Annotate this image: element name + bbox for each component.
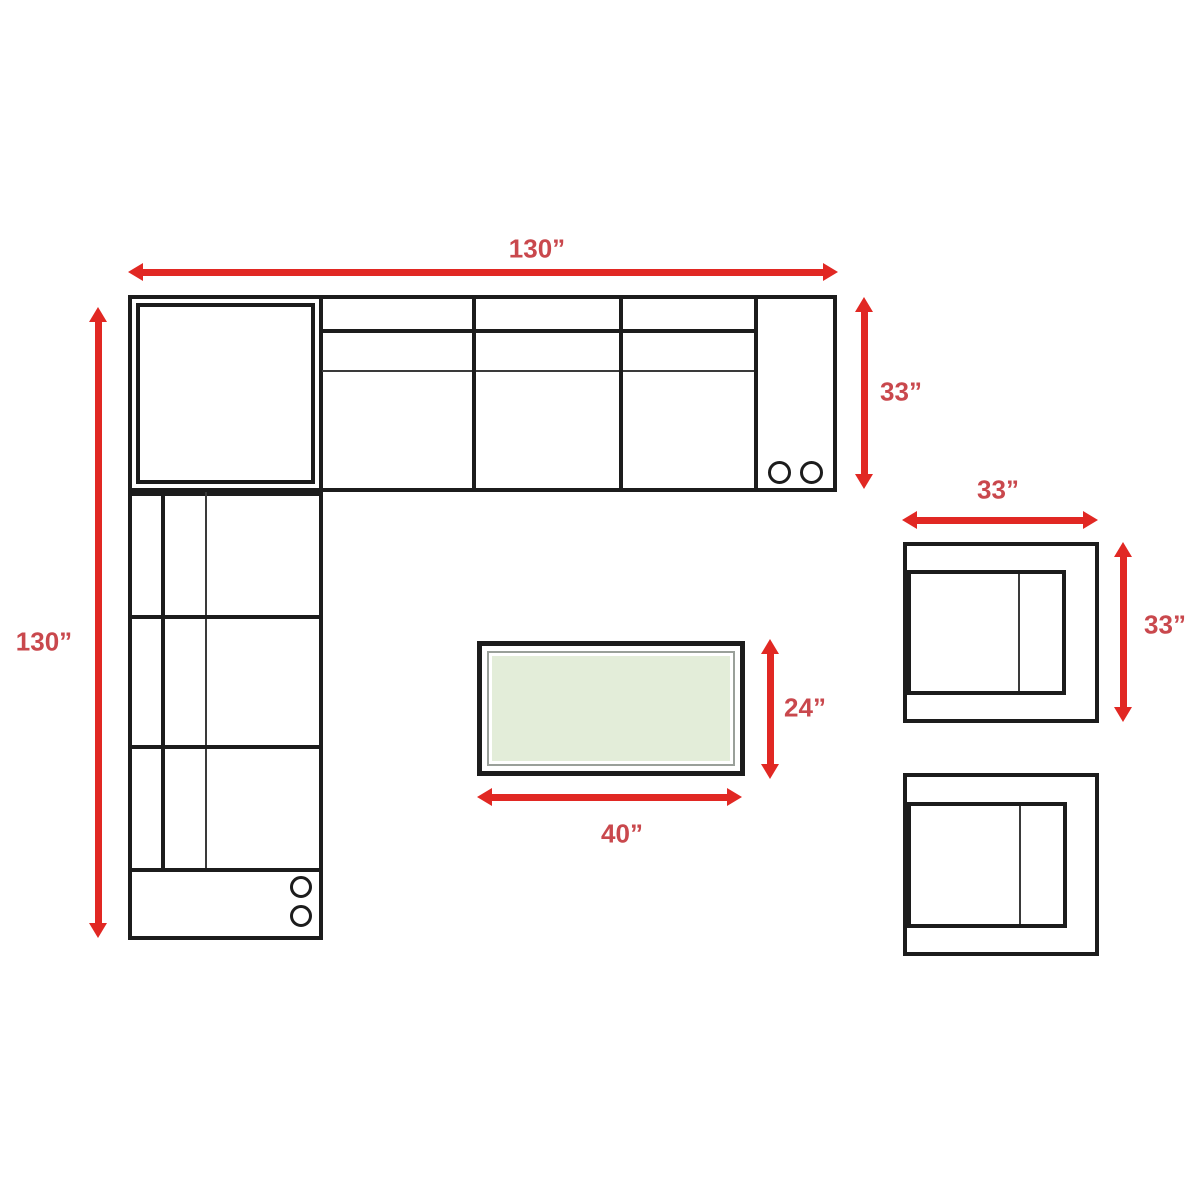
- dim-label-armchair-width: 33”: [977, 475, 1019, 506]
- armchair-1-cushion-line: [1018, 574, 1020, 691]
- arrowhead-down-icon: [761, 764, 779, 779]
- dim-arrow-table-depth: [761, 639, 779, 779]
- sectional-left-seat-divider-1: [128, 615, 323, 619]
- arrowhead-right-icon: [1083, 511, 1098, 529]
- dim-label-sectional-width: 130”: [509, 234, 565, 265]
- sectional-left-armrest-divider: [128, 868, 323, 872]
- sectional-left-outline: [128, 492, 323, 940]
- cupholder-icon: [768, 461, 791, 484]
- arrowhead-right-icon: [727, 788, 742, 806]
- arrow-shaft: [767, 651, 774, 767]
- dim-arrow-sectional-width: [128, 263, 838, 281]
- dim-arrow-armchair-depth: [1114, 542, 1132, 722]
- armchair-2-cushion-line: [1019, 806, 1021, 924]
- sectional-top-armrest-divider: [754, 295, 758, 492]
- cupholder-icon: [290, 905, 312, 927]
- arrow-shaft: [1120, 554, 1127, 710]
- sectional-top-seat-divider-1: [472, 295, 476, 492]
- dim-arrow-sectional-depth: [855, 297, 873, 489]
- arrow-shaft: [140, 269, 826, 276]
- armchair-1-seat: [907, 570, 1066, 695]
- arrow-shaft: [861, 309, 868, 477]
- sectional-top-backrest-line: [322, 329, 755, 333]
- arrow-shaft: [489, 794, 730, 801]
- arrow-shaft: [914, 517, 1086, 524]
- dim-label-table-width: 40”: [601, 819, 643, 850]
- dim-label-armchair-depth: 33”: [1144, 610, 1186, 641]
- furniture-dimension-floorplan: 130” 33” 130” 33” 33” 24” 40”: [0, 0, 1200, 1200]
- dim-label-table-depth: 24”: [784, 693, 826, 724]
- arrowhead-right-icon: [823, 263, 838, 281]
- dim-arrow-armchair-width: [902, 511, 1098, 529]
- coffee-table-glass-top: [492, 656, 730, 761]
- armchair-2-seat: [907, 802, 1067, 928]
- dim-label-sectional-length: 130”: [16, 627, 72, 658]
- arrow-shaft: [95, 319, 102, 926]
- sectional-top-backcushion-line: [322, 370, 755, 372]
- dim-arrow-table-width: [477, 788, 742, 806]
- cupholder-icon: [800, 461, 823, 484]
- dim-arrow-sectional-length: [89, 307, 107, 938]
- sectional-corner-divider: [319, 295, 323, 492]
- sectional-corner-seat: [136, 303, 315, 484]
- dim-label-sectional-depth: 33”: [880, 377, 922, 408]
- arrowhead-down-icon: [855, 474, 873, 489]
- sectional-left-seat-divider-2: [128, 745, 323, 749]
- arrowhead-down-icon: [89, 923, 107, 938]
- sectional-left-backrest-line: [161, 492, 165, 872]
- arrowhead-down-icon: [1114, 707, 1132, 722]
- sectional-top-seat-divider-2: [619, 295, 623, 492]
- cupholder-icon: [290, 876, 312, 898]
- sectional-left-backcushion-line: [205, 492, 207, 872]
